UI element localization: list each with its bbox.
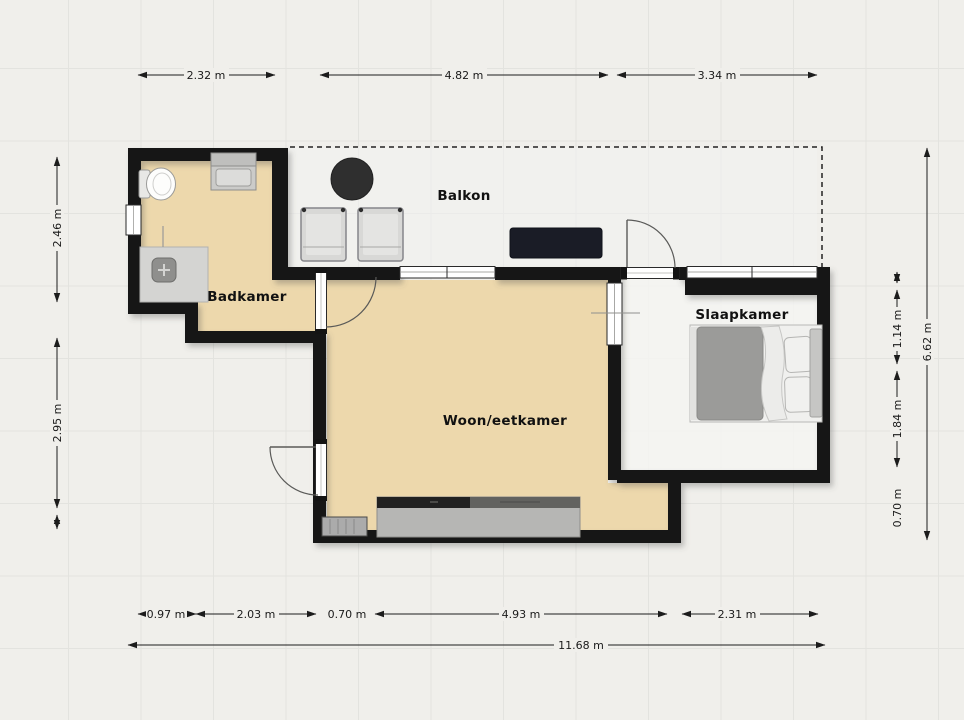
toilet[interactable] bbox=[139, 168, 176, 200]
balcony-chair-2[interactable] bbox=[358, 208, 403, 261]
entry-door[interactable] bbox=[270, 439, 327, 501]
dim-bottom-total: 11.68 m bbox=[558, 639, 604, 652]
dim-top-2: 4.82 m bbox=[445, 69, 484, 82]
dim-top-3: 3.34 m bbox=[698, 69, 737, 82]
dim-right-3: 0.70 m bbox=[891, 489, 904, 528]
hall-floor[interactable] bbox=[272, 280, 316, 331]
room-woonkamer-floor[interactable] bbox=[327, 280, 608, 530]
dim-left-1: 2.46 m bbox=[51, 209, 64, 248]
bedroom-window[interactable] bbox=[687, 267, 817, 279]
dim-top-1: 2.32 m bbox=[187, 69, 226, 82]
dimensions-right: 1.14 m 1.84 m 0.70 m 6.62 m bbox=[890, 148, 934, 540]
dim-bottom-4: 4.93 m bbox=[502, 608, 541, 621]
dim-bottom-2: 2.03 m bbox=[237, 608, 276, 621]
dim-left-2: 2.95 m bbox=[51, 404, 64, 443]
tv-bench[interactable] bbox=[510, 228, 602, 258]
double-bed[interactable] bbox=[690, 325, 822, 422]
label-slaapkamer: Slaapkamer bbox=[695, 307, 788, 323]
wall-bath-south-lower bbox=[185, 331, 326, 343]
balcony-chair-1[interactable] bbox=[301, 208, 346, 261]
wall-north-b bbox=[495, 267, 621, 280]
dim-right-2: 1.84 m bbox=[891, 400, 904, 439]
label-woon-eetkamer: Woon/eetkamer bbox=[443, 413, 567, 429]
dim-right-total: 6.62 m bbox=[921, 323, 934, 362]
dim-bottom-1: 0.97 m bbox=[147, 608, 186, 621]
wall-north-a bbox=[272, 267, 400, 280]
wall-bedroom-south bbox=[617, 470, 830, 483]
wall-living-east-lower bbox=[668, 482, 681, 543]
living-window[interactable] bbox=[400, 267, 495, 279]
dimensions-top: 2.32 m 4.82 m 3.34 m bbox=[138, 68, 817, 82]
dim-bottom-3: 0.70 m bbox=[328, 608, 367, 621]
dim-right-1: 1.14 m bbox=[891, 310, 904, 349]
dimensions-bottom: 0.97 m 2.03 m 0.70 m 4.93 m 2.31 m 11.68… bbox=[128, 607, 825, 652]
wall-bath-east bbox=[272, 148, 288, 280]
wall-bedroom-north-bar bbox=[685, 277, 817, 295]
label-balkon: Balkon bbox=[437, 188, 490, 204]
floorplan-drawing: Balkon Badkamer Woon/eetkamer Slaapkamer… bbox=[0, 0, 964, 720]
round-table[interactable] bbox=[331, 158, 373, 200]
kitchen-counter[interactable] bbox=[377, 497, 580, 537]
sink-vanity[interactable] bbox=[211, 153, 256, 190]
room-woonkamer-floor-ext[interactable] bbox=[608, 483, 668, 530]
dimensions-left: 2.46 m 2.95 m bbox=[50, 157, 64, 529]
dim-bottom-5: 2.31 m bbox=[718, 608, 757, 621]
floorplan-canvas: Balkon Badkamer Woon/eetkamer Slaapkamer… bbox=[0, 0, 964, 720]
label-badkamer: Badkamer bbox=[207, 289, 286, 305]
radiator[interactable] bbox=[322, 517, 367, 536]
wall-living-west bbox=[313, 331, 326, 543]
wall-bath-north bbox=[128, 148, 288, 161]
bathroom-window[interactable] bbox=[126, 205, 141, 235]
